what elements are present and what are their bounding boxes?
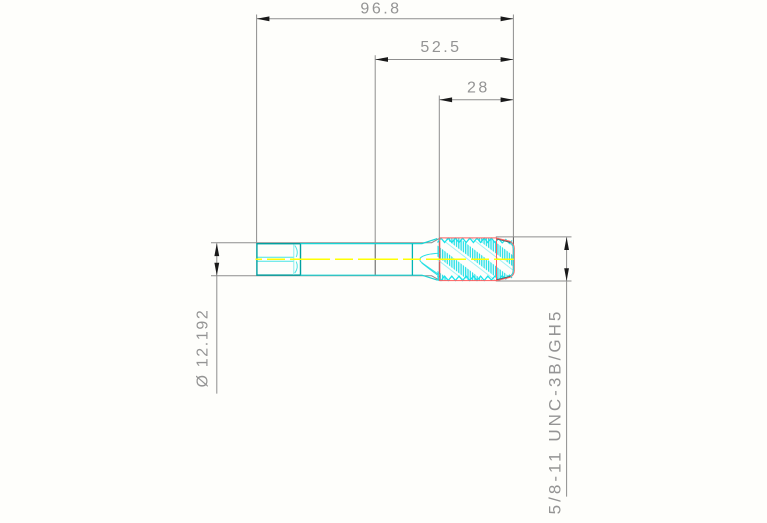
svg-text:52.5: 52.5 [420,39,461,56]
svg-text:96.8: 96.8 [360,1,401,18]
svg-text:Ø 12.192: Ø 12.192 [195,309,212,388]
svg-text:5/8-11 UNC-3B/GH5: 5/8-11 UNC-3B/GH5 [546,309,565,515]
svg-text:28: 28 [467,80,490,97]
